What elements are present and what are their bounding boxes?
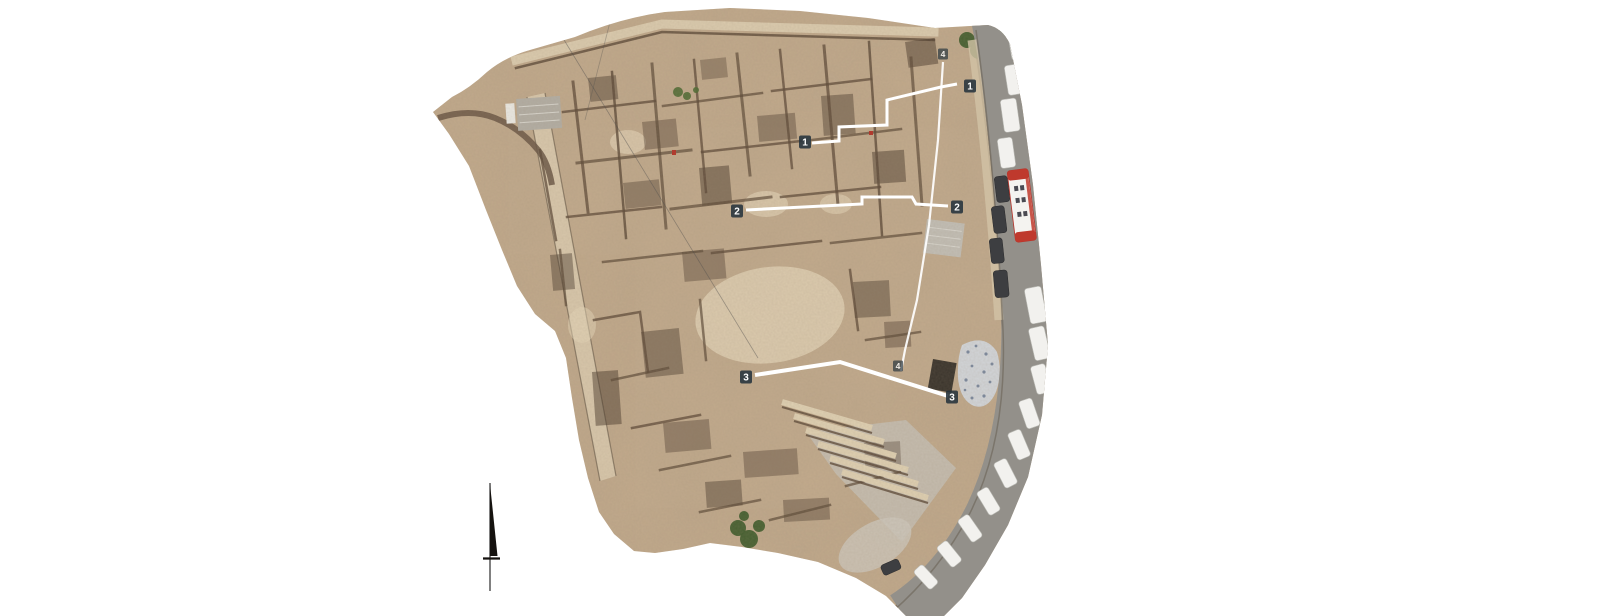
- section-label-1-left: 1: [799, 136, 811, 149]
- section-label-4-bottom: 4: [893, 361, 903, 372]
- svg-text:3: 3: [949, 393, 955, 404]
- svg-text:1: 1: [802, 138, 808, 149]
- svg-text:2: 2: [734, 207, 740, 218]
- section-label-2-right: 2: [951, 201, 963, 214]
- section-label-3-right: 3: [946, 391, 958, 404]
- site-orthophoto: 1 1 2 2 3 3 4 4: [0, 0, 1600, 616]
- section-label-1-right: 1: [964, 80, 976, 93]
- excavation-area: [420, 0, 1060, 616]
- section-label-3-left: 3: [740, 371, 752, 384]
- svg-text:1: 1: [967, 82, 973, 93]
- svg-text:3: 3: [743, 373, 749, 384]
- parked-car-dark: [989, 238, 1005, 264]
- parked-car-white: [1005, 19, 1024, 37]
- section-label-2-left: 2: [731, 205, 743, 218]
- parked-car-dark: [993, 270, 1009, 298]
- figure-canvas: 1 1 2 2 3 3 4 4: [0, 0, 1600, 616]
- section-label-4-top: 4: [938, 49, 948, 60]
- svg-text:2: 2: [954, 203, 960, 214]
- svg-text:4: 4: [896, 361, 901, 371]
- svg-text:4: 4: [941, 49, 946, 59]
- north-arrow-icon: [483, 483, 500, 591]
